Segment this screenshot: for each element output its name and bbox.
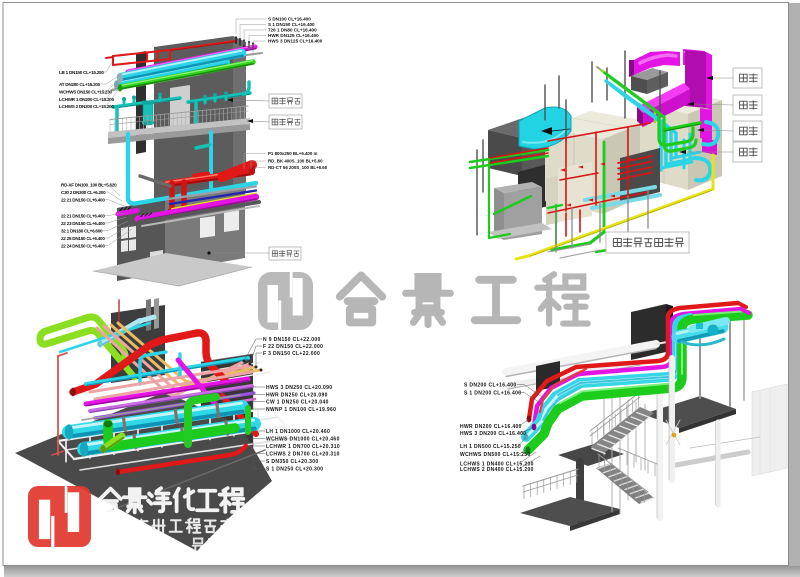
svg-text:S 1 DN200 CL+16.400: S 1 DN200 CL+16.400 <box>464 390 521 396</box>
svg-text:S 1 DN250 CL+20.300: S 1 DN250 CL+20.300 <box>266 466 323 472</box>
svg-text:RD-CT 56 200S_100 BL+6.60: RD-CT 56 200S_100 BL+6.60 <box>268 165 328 170</box>
svg-text:22 23 DN150 CL+6.400: 22 23 DN150 CL+6.400 <box>61 221 105 226</box>
svg-text:726 1 DN80 CL+16.400: 726 1 DN80 CL+16.400 <box>268 28 317 33</box>
svg-text:22 21 DN150 CL+6.400: 22 21 DN150 CL+6.400 <box>61 213 105 218</box>
svg-text:22 25 DN150 CL+6.400: 22 25 DN150 CL+6.400 <box>61 236 105 241</box>
svg-text:S DN350 CL+20.300: S DN350 CL+20.300 <box>266 459 319 465</box>
svg-text:F 22 DN150 CL+22.000: F 22 DN150 CL+22.000 <box>263 344 323 350</box>
svg-text:RD-XF DN100_100 BL+5.620: RD-XF DN100_100 BL+5.620 <box>61 182 117 187</box>
svg-text:HWS 3 DN250 CL+20.090: HWS 3 DN250 CL+20.090 <box>266 385 332 391</box>
svg-text:HWS 3 DN125 CL+16.400: HWS 3 DN125 CL+16.400 <box>268 39 323 44</box>
svg-text:S 1 DN150 CL+16.400: S 1 DN150 CL+16.400 <box>268 22 315 27</box>
svg-text:LH 1 DN500 CL+15.250: LH 1 DN500 CL+15.250 <box>460 444 521 450</box>
svg-text:LCHWR 1 DN200 CL+15.200: LCHWR 1 DN200 CL+15.200 <box>59 97 115 102</box>
svg-text:HWR DN250 CL+20.090: HWR DN250 CL+20.090 <box>266 392 328 398</box>
svg-text:WCHWS DN150 CL+15.230: WCHWS DN150 CL+15.230 <box>59 89 113 94</box>
svg-text:CW 1 DN250 CL+20.040: CW 1 DN250 CL+20.040 <box>266 399 329 405</box>
svg-text:LH 1 DN1000 CL+20.460: LH 1 DN1000 CL+20.460 <box>266 429 330 435</box>
svg-text:HWS 3 DN200 CL+16.400: HWS 3 DN200 CL+16.400 <box>460 431 526 437</box>
svg-text:RD_BK 400S_100 BL+5.60: RD_BK 400S_100 BL+5.60 <box>268 159 323 164</box>
svg-text:HWR DN200 CL+16.400: HWR DN200 CL+16.400 <box>460 424 522 430</box>
svg-text:HWR DN125 CL+16.400: HWR DN125 CL+16.400 <box>268 33 319 38</box>
svg-text:LCHWS 2 DN400 CL+15.200: LCHWS 2 DN400 CL+15.200 <box>460 467 534 473</box>
svg-text:WCHWS DN1000 CL+20.460: WCHWS DN1000 CL+20.460 <box>266 436 340 442</box>
svg-text:22 24 DN150 CL+6.400: 22 24 DN150 CL+6.400 <box>61 243 105 248</box>
svg-text:N 9 DN150 CL+22.000: N 9 DN150 CL+22.000 <box>263 337 321 343</box>
svg-text:LCHWR 1 DN700 CL+20.310: LCHWR 1 DN700 CL+20.310 <box>266 444 340 450</box>
svg-text:F 3 DN150 CL+22.000: F 3 DN150 CL+22.000 <box>263 351 320 357</box>
svg-text:P1 800x250 BL+6.400 m: P1 800x250 BL+6.400 m <box>268 151 318 156</box>
svg-text:AT DN200 CL+15.200: AT DN200 CL+15.200 <box>59 82 101 87</box>
svg-text:22 21 DN150 CL+6.400: 22 21 DN150 CL+6.400 <box>61 197 105 202</box>
svg-text:S DN100 CL+16.400: S DN100 CL+16.400 <box>268 17 311 22</box>
svg-text:LCHWS 2 DN700 CL+20.310: LCHWS 2 DN700 CL+20.310 <box>266 451 340 457</box>
svg-text:32 1 DN180 CL+6.600: 32 1 DN180 CL+6.600 <box>61 228 103 233</box>
svg-text:S DN200 CL+16.400: S DN200 CL+16.400 <box>464 382 517 388</box>
svg-text:NWNP 1 DN100 CL+19.960: NWNP 1 DN100 CL+19.960 <box>266 407 336 413</box>
svg-text:LB 1 DN150 CL+15.250: LB 1 DN150 CL+15.250 <box>59 70 104 75</box>
svg-text:C30 2 DN300 CL+6.200: C30 2 DN300 CL+6.200 <box>61 190 106 195</box>
svg-text:LCHWS 2 DN200 CL+15.200: LCHWS 2 DN200 CL+15.200 <box>59 104 114 109</box>
svg-text:WCHWS DN500 CL+15.250: WCHWS DN500 CL+15.250 <box>460 452 531 458</box>
